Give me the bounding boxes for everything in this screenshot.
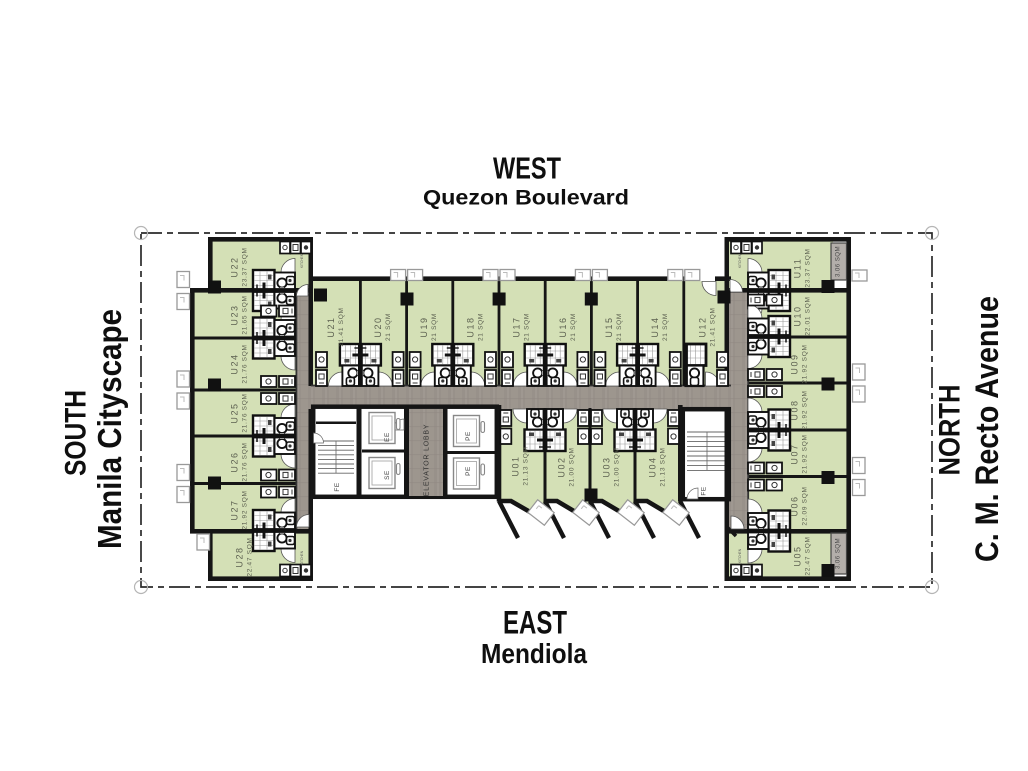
svg-text:U09: U09 (790, 353, 800, 374)
svg-text:21.92 SQM: 21.92 SQM (242, 490, 249, 529)
svg-text:21 SQM: 21 SQM (431, 313, 438, 341)
svg-text:U25: U25 (230, 402, 240, 423)
svg-text:U23: U23 (230, 304, 240, 325)
svg-text:U28: U28 (235, 546, 245, 567)
svg-text:21.13 SQM: 21.13 SQM (660, 447, 667, 486)
svg-text:21.00 SQM: 21.00 SQM (614, 447, 621, 486)
svg-text:U19: U19 (419, 316, 429, 337)
svg-text:U20: U20 (373, 316, 383, 337)
svg-text:21 SQM: 21 SQM (524, 313, 531, 341)
svg-text:U03: U03 (602, 456, 612, 477)
svg-text:C. M. Recto Avenue: C. M. Recto Avenue (969, 296, 1005, 562)
svg-text:21.13 SQM: 21.13 SQM (523, 446, 530, 485)
svg-text:21.41 SQM: 21.41 SQM (338, 307, 345, 346)
svg-text:21.00 SQM: 21.00 SQM (569, 447, 576, 486)
svg-text:ELEVATOR LOBBY: ELEVATOR LOBBY (424, 424, 431, 497)
svg-text:Quezon Boulevard: Quezon Boulevard (423, 186, 629, 210)
svg-text:U12: U12 (698, 316, 708, 337)
svg-text:U04: U04 (648, 456, 658, 477)
svg-text:SE: SE (384, 470, 391, 480)
svg-text:U26: U26 (230, 451, 240, 472)
svg-text:U15: U15 (604, 316, 614, 337)
svg-text:U27: U27 (230, 499, 240, 520)
svg-text:22.09 SQM: 22.09 SQM (802, 486, 809, 525)
svg-text:21.65 SQM: 21.65 SQM (242, 295, 249, 334)
svg-text:22.01 SQM: 22.01 SQM (805, 296, 812, 335)
svg-text:U21: U21 (326, 316, 336, 337)
svg-text:21 SQM: 21 SQM (616, 313, 623, 341)
svg-text:Mendiola: Mendiola (481, 638, 588, 669)
svg-text:PE: PE (465, 431, 472, 441)
svg-text:U14: U14 (650, 316, 660, 337)
svg-text:U06: U06 (790, 495, 800, 516)
svg-text:KITCHEN: KITCHEN (738, 253, 742, 268)
svg-text:U01: U01 (511, 455, 521, 476)
svg-text:KITCHEN: KITCHEN (300, 253, 304, 268)
svg-text:U17: U17 (512, 316, 522, 337)
svg-text:WEST: WEST (493, 152, 561, 185)
svg-text:21.92 SQM: 21.92 SQM (802, 434, 809, 473)
svg-text:21.92 SQM: 21.92 SQM (802, 390, 809, 429)
svg-text:U16: U16 (558, 316, 568, 337)
svg-text:21.76 SQM: 21.76 SQM (242, 393, 249, 432)
svg-text:U18: U18 (465, 316, 475, 337)
svg-text:PE: PE (465, 466, 472, 476)
svg-text:Manila Cityscape: Manila Cityscape (91, 309, 128, 549)
svg-text:U02: U02 (557, 456, 567, 477)
svg-text:U11: U11 (793, 258, 803, 279)
svg-text:21.92 SQM: 21.92 SQM (802, 344, 809, 383)
svg-text:U07: U07 (790, 443, 800, 464)
svg-text:FE: FE (334, 482, 341, 491)
svg-text:21 SQM: 21 SQM (570, 313, 577, 341)
svg-text:23.37 SQM: 23.37 SQM (805, 248, 812, 287)
svg-text:EAST: EAST (503, 605, 567, 641)
svg-text:21.41 SQM: 21.41 SQM (710, 307, 717, 346)
svg-text:U05: U05 (793, 545, 803, 566)
svg-text:U08: U08 (790, 399, 800, 420)
svg-text:21.76 SQM: 21.76 SQM (242, 442, 249, 481)
svg-text:23.37 SQM: 23.37 SQM (242, 247, 249, 286)
svg-text:EE: EE (384, 432, 391, 442)
svg-text:21.76 SQM: 21.76 SQM (242, 344, 249, 383)
svg-text:KITCHEN: KITCHEN (738, 548, 742, 563)
svg-text:3.06 SQM: 3.06 SQM (835, 246, 842, 277)
svg-text:U22: U22 (230, 256, 240, 277)
svg-text:SOUTH: SOUTH (60, 390, 93, 476)
svg-text:FE: FE (701, 486, 708, 495)
svg-text:NORTH: NORTH (934, 385, 967, 476)
svg-text:22.47 SQM: 22.47 SQM (247, 537, 254, 576)
svg-text:21 SQM: 21 SQM (477, 313, 484, 341)
svg-text:3.06 SQM: 3.06 SQM (835, 538, 842, 569)
svg-text:U10: U10 (793, 305, 803, 326)
svg-text:22.47 SQM: 22.47 SQM (805, 536, 812, 575)
svg-text:21 SQM: 21 SQM (662, 313, 669, 341)
svg-text:KITCHEN: KITCHEN (300, 550, 304, 565)
svg-text:21 SQM: 21 SQM (385, 313, 392, 341)
svg-text:U24: U24 (230, 353, 240, 374)
